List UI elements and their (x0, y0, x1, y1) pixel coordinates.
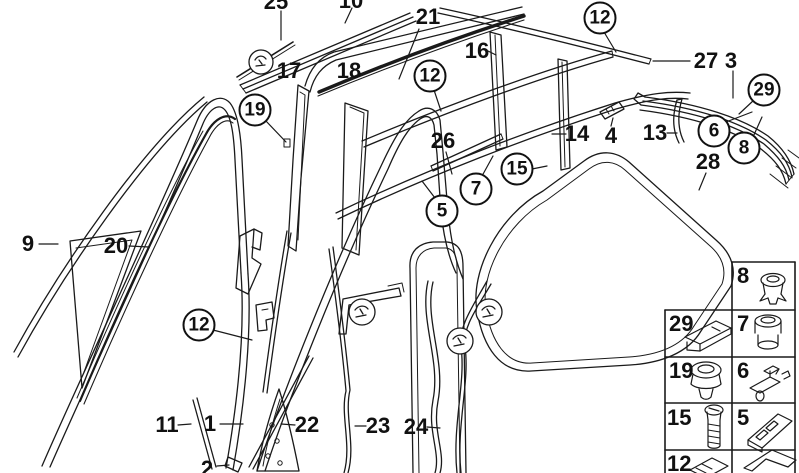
callout-21[interactable]: 21 (416, 6, 440, 28)
legend-cell-5[interactable]: 5 (737, 407, 749, 429)
callout-18[interactable]: 18 (337, 60, 361, 82)
callout-23[interactable]: 23 (366, 415, 390, 437)
circled-callout-8[interactable]: 8 (728, 132, 761, 165)
circled-callout-5[interactable]: 5 (426, 195, 459, 228)
circled-callout-12-c[interactable]: 12 (183, 309, 216, 342)
callout-1[interactable]: 1 (204, 413, 216, 435)
circled-callout-12-b[interactable]: 12 (584, 2, 617, 35)
callout-22[interactable]: 22 (295, 414, 319, 436)
callout-28[interactable]: 28 (696, 151, 720, 173)
legend-cell-6[interactable]: 6 (737, 360, 749, 382)
clip-plate-small-icon (690, 458, 728, 473)
callout-11[interactable]: 11 (155, 414, 178, 436)
part-seal-23 (329, 247, 351, 473)
callout-25[interactable]: 25 (264, 0, 288, 13)
callout-4[interactable]: 4 (605, 125, 617, 147)
sleeve-grommet-icon (755, 315, 781, 349)
callout-13[interactable]: 13 (643, 122, 667, 144)
legend-cell-15[interactable]: 15 (667, 407, 691, 429)
nut-grommet-icon (691, 362, 721, 399)
circled-callout-29[interactable]: 29 (748, 74, 781, 107)
part-seal-24 (426, 281, 442, 473)
part-pillar-trim-17 (284, 85, 309, 251)
legend-cell-7[interactable]: 7 (737, 313, 749, 335)
callout-2[interactable]: 2 (201, 458, 213, 473)
screw-bolt-icon (705, 405, 723, 448)
circled-callout-15[interactable]: 15 (501, 153, 534, 186)
circled-callout-6[interactable]: 6 (698, 115, 731, 148)
part-pillar-trim-18 (342, 103, 368, 255)
part-pillar-trim-16 (490, 32, 507, 150)
legend-cell-19[interactable]: 19 (669, 360, 693, 382)
legend-cell-8[interactable]: 8 (737, 265, 749, 287)
legend-cell-12[interactable]: 12 (667, 453, 691, 473)
callout-17[interactable]: 17 (277, 60, 301, 82)
callout-10[interactable]: 10 (339, 0, 363, 12)
callout-3[interactable]: 3 (725, 50, 737, 72)
parts-diagram-page: 25 10 21 16 17 18 27 3 14 4 13 28 26 9 2… (0, 0, 799, 473)
arrow-chevron-icon (744, 450, 796, 471)
circled-callout-7[interactable]: 7 (460, 173, 493, 206)
callout-24[interactable]: 24 (404, 416, 428, 438)
callout-20[interactable]: 20 (104, 235, 128, 257)
part-pillar-trim-14 (558, 59, 570, 170)
part-weatherstrip-20 (77, 116, 235, 404)
circled-callout-19[interactable]: 19 (239, 94, 272, 127)
angled-bracket-icon (748, 414, 792, 452)
callout-16[interactable]: 16 (465, 40, 489, 62)
callout-9[interactable]: 9 (22, 233, 34, 255)
legend-cell-29[interactable]: 29 (669, 313, 693, 335)
circled-callout-12-a[interactable]: 12 (414, 60, 447, 93)
callout-26[interactable]: 26 (431, 130, 455, 152)
part-glass-seal-28 (476, 153, 733, 371)
grommet-icon (760, 274, 786, 305)
part-door-edge-seal (263, 231, 291, 393)
leader-lines (39, 8, 762, 466)
callout-27[interactable]: 27 (694, 50, 718, 72)
callout-14[interactable]: 14 (565, 123, 589, 145)
part-triangle-trim-22 (257, 389, 299, 471)
retainer-clip-icon (750, 366, 790, 401)
